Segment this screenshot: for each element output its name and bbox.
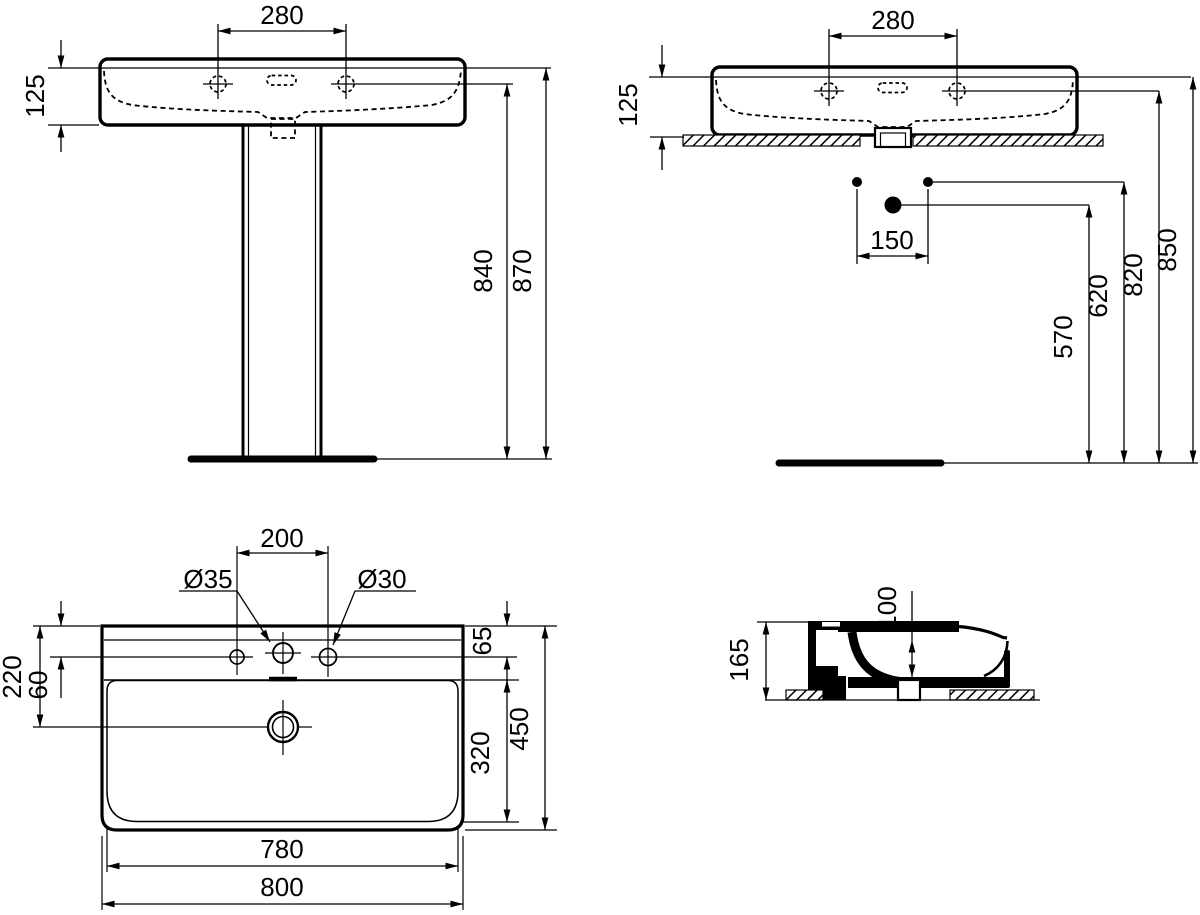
dim-label-tap-height: 840	[468, 249, 498, 292]
overflow-slot	[267, 76, 296, 86]
dim-label-section-height: 165	[724, 638, 754, 681]
bowl-hidden-contour	[104, 71, 461, 118]
fixing-bolt-left	[852, 177, 862, 187]
dim-label-tap-offset-right: 65	[467, 627, 497, 656]
section-rim-curve	[958, 627, 1007, 639]
plan-view: 200 Ø35 Ø30 220 60 65 320 450 780	[0, 523, 557, 910]
base-hatch-left	[786, 690, 823, 700]
waste-point	[885, 197, 902, 214]
section-view: 165 100	[724, 586, 1040, 700]
dim-label-rim-height: 850	[1152, 228, 1182, 271]
dim-label-rim-depth-front: 125	[20, 74, 50, 117]
section-drain-box	[898, 680, 920, 700]
section-wall-notch	[816, 630, 838, 666]
dim-label-overall-width: 800	[260, 872, 303, 902]
section-right-edge	[1004, 650, 1010, 688]
label-side-hole-dia: Ø30	[357, 564, 406, 594]
dim-label-bowl-depth: 100	[872, 586, 902, 629]
dim-label-rim-depth-side: 125	[613, 83, 643, 126]
technical-drawing-canvas: 280 125 840 870 280 125	[0, 0, 1200, 915]
pedestal	[243, 126, 321, 456]
basin-outline-front	[100, 59, 465, 125]
dim-label-waste-height: 570	[1048, 315, 1078, 358]
section-base-band	[848, 677, 1008, 688]
front-view: 280 125 840 870	[20, 0, 552, 459]
washbasin-drawing: 280 125 840 870 280 125	[0, 0, 1200, 915]
dim-label-bolt-height: 620	[1083, 274, 1113, 317]
dim-label-tap-height-side: 820	[1118, 253, 1148, 296]
dim-label-bowl-width: 780	[260, 834, 303, 864]
base-hatch-right	[950, 690, 1034, 700]
leader-centre-hole	[237, 591, 270, 642]
shelf-hatch-left	[683, 135, 860, 146]
leader-side-hole	[333, 591, 355, 645]
section-wall-gap	[838, 632, 847, 676]
overflow-slot-side	[878, 83, 907, 93]
dim-label-bolt-spacing: 150	[870, 225, 913, 255]
dim-label-side-hole-spacing: 200	[260, 523, 303, 553]
dim-label-tap-offset-left: 60	[23, 671, 53, 700]
fixing-bolt-right	[923, 177, 933, 187]
dim-label-tap-spacing-front: 280	[260, 0, 303, 30]
dim-label-tap-spacing-side: 280	[871, 5, 914, 35]
bowl-hidden-contour-side	[716, 80, 1073, 127]
dim-label-bowl-length: 320	[465, 731, 495, 774]
shelf-hatch-right	[913, 135, 1103, 146]
section-bowl-wall	[852, 632, 908, 682]
dim-label-overall-depth: 450	[504, 707, 534, 750]
waste-hidden-outline	[271, 119, 295, 138]
wall-hung-view: 280 125 150 570 620 820 850	[613, 5, 1198, 463]
dim-label-overall-height: 870	[507, 249, 537, 292]
section-bowl-right-wall	[984, 641, 1008, 676]
label-centre-hole-dia: Ø35	[183, 564, 232, 594]
section-top-slot	[822, 622, 840, 627]
